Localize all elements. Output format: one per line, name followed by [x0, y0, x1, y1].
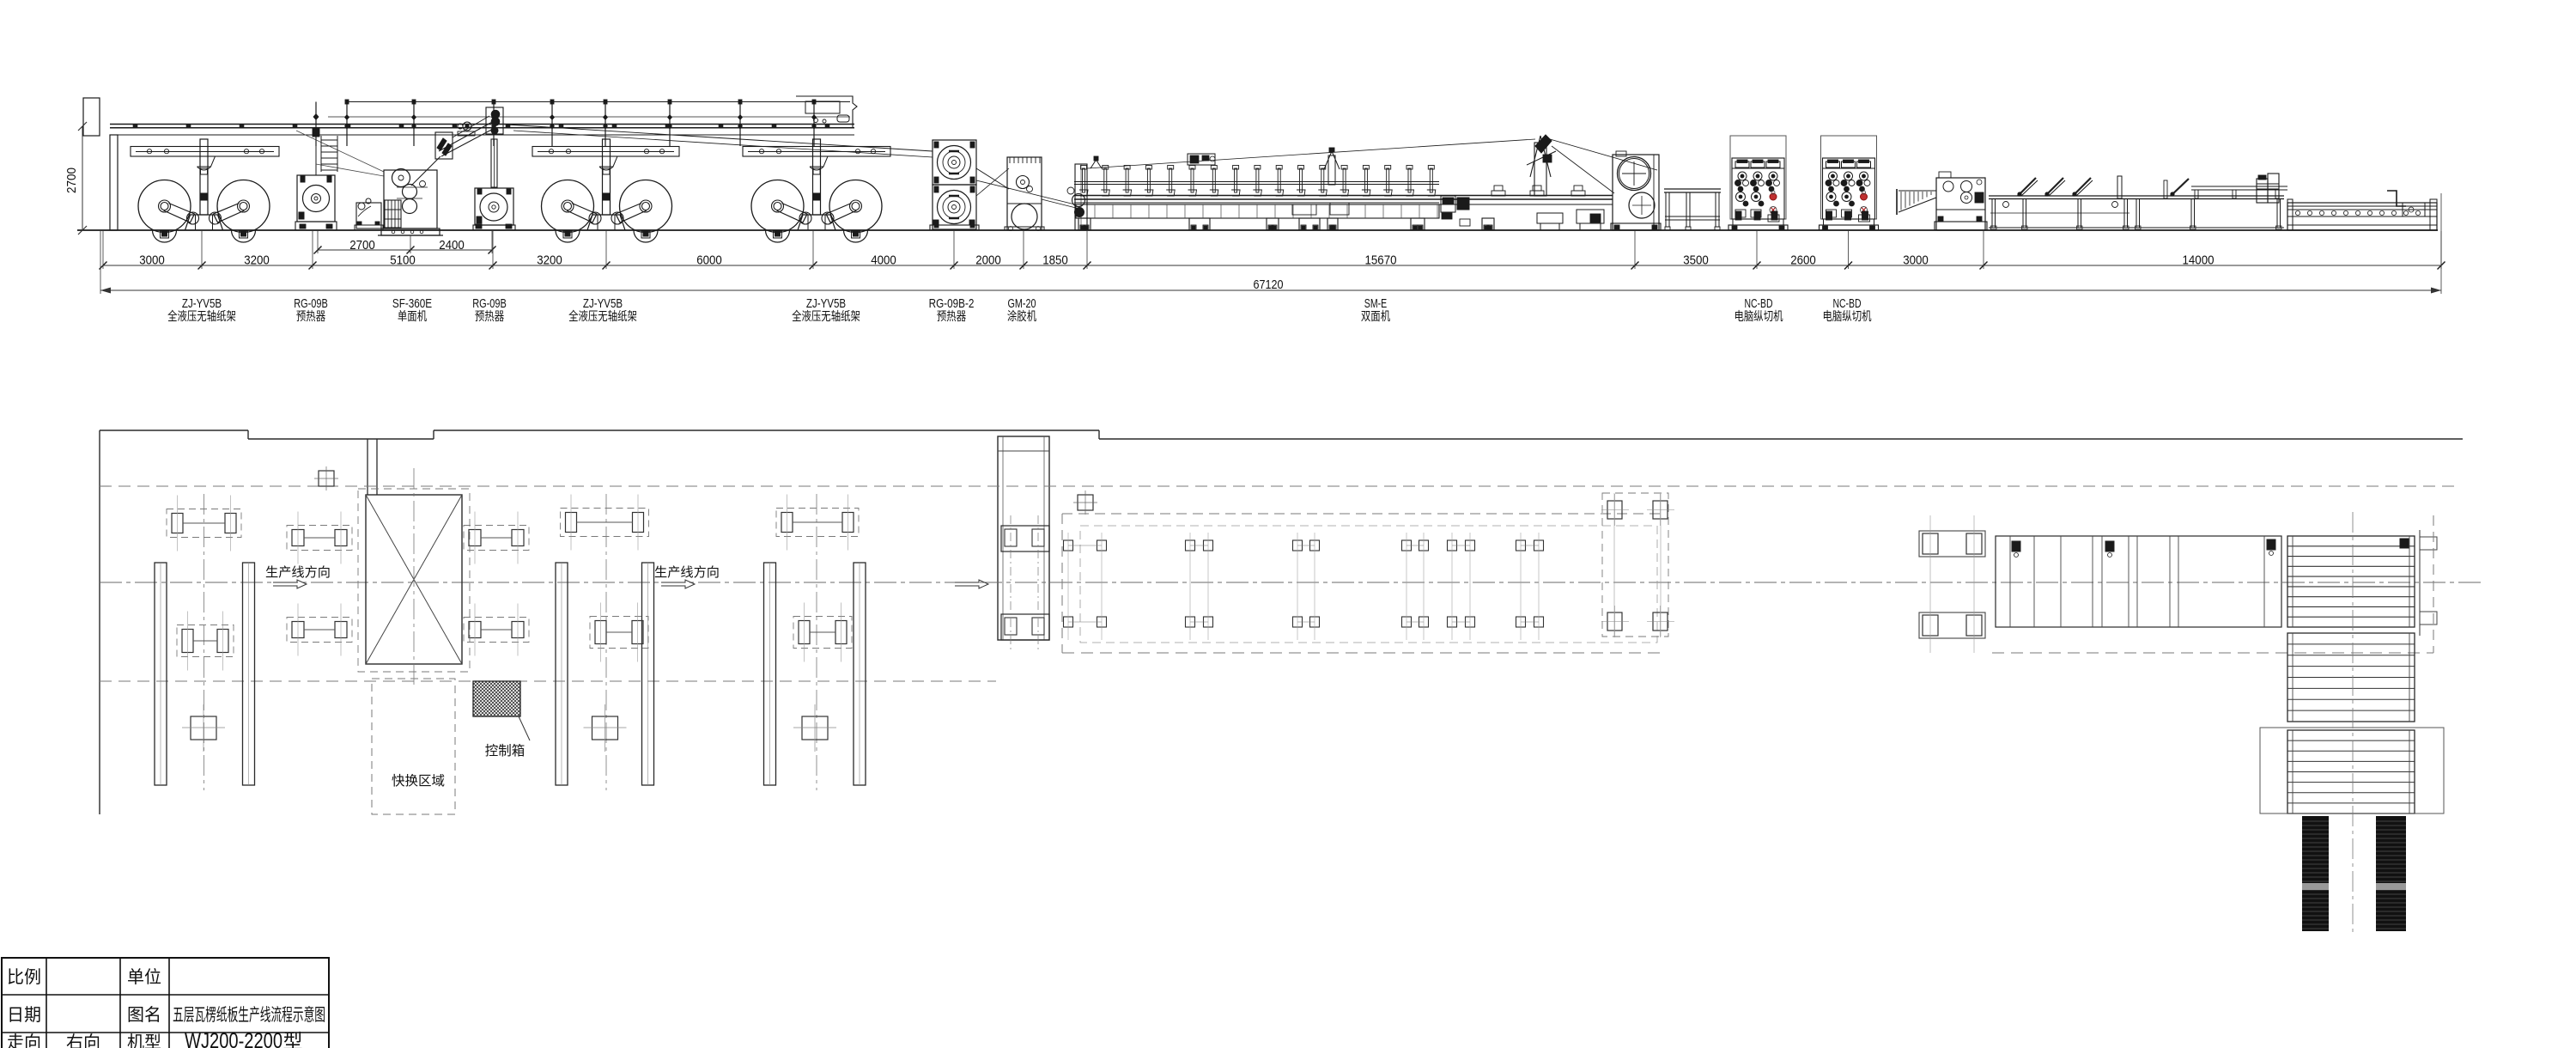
svg-text:电脑纵切机: 电脑纵切机	[1823, 309, 1872, 323]
svg-text:预热器: 预热器	[937, 309, 966, 323]
svg-text:1850: 1850	[1042, 253, 1068, 268]
svg-text:4000: 4000	[871, 253, 896, 268]
svg-text:双面机: 双面机	[1361, 309, 1390, 323]
svg-text:3200: 3200	[537, 253, 562, 268]
svg-text:电脑纵切机: 电脑纵切机	[1735, 309, 1783, 323]
svg-text:2700: 2700	[349, 238, 375, 253]
svg-text:全液压无轴纸架: 全液压无轴纸架	[167, 309, 236, 323]
svg-text:6000: 6000	[696, 253, 722, 268]
svg-text:14000: 14000	[2183, 253, 2215, 268]
svg-text:生产线方向: 生产线方向	[654, 565, 720, 580]
svg-text:型: 型	[283, 1030, 303, 1048]
svg-text:全液压无轴纸架: 全液压无轴纸架	[568, 309, 637, 323]
svg-text:单位: 单位	[127, 967, 161, 987]
svg-text:涂胶机: 涂胶机	[1007, 309, 1036, 323]
svg-text:2600: 2600	[1790, 253, 1816, 268]
svg-text:2700: 2700	[64, 168, 79, 193]
svg-text:生产线方向: 生产线方向	[265, 565, 331, 580]
svg-text:机型: 机型	[127, 1033, 161, 1048]
svg-text:67120: 67120	[1254, 277, 1284, 292]
svg-text:5100: 5100	[390, 253, 416, 268]
svg-text:预热器: 预热器	[296, 309, 325, 323]
svg-text:日期: 日期	[7, 1006, 41, 1025]
svg-text:3000: 3000	[139, 253, 165, 268]
svg-text:3000: 3000	[1903, 253, 1929, 268]
svg-text:3200: 3200	[244, 253, 270, 268]
svg-text:图名: 图名	[127, 1005, 161, 1025]
svg-text:控制箱: 控制箱	[485, 743, 526, 759]
svg-text:全液压无轴纸架: 全液压无轴纸架	[792, 309, 860, 323]
svg-text:比例: 比例	[7, 967, 41, 987]
svg-text:2000: 2000	[975, 253, 1001, 268]
svg-text:单面机: 单面机	[398, 309, 427, 323]
svg-text:WJ200-2200: WJ200-2200	[185, 1029, 283, 1048]
svg-text:右向: 右向	[66, 1033, 100, 1048]
svg-text:走向: 走向	[7, 1033, 41, 1048]
svg-text:快换区域: 快换区域	[392, 773, 445, 789]
svg-text:15670: 15670	[1365, 253, 1397, 268]
svg-text:预热器: 预热器	[475, 309, 504, 323]
svg-text:2400: 2400	[439, 238, 465, 253]
svg-text:五层瓦楞纸板生产线流程示意图: 五层瓦楞纸板生产线流程示意图	[173, 1005, 325, 1025]
svg-text:3500: 3500	[1683, 253, 1709, 268]
